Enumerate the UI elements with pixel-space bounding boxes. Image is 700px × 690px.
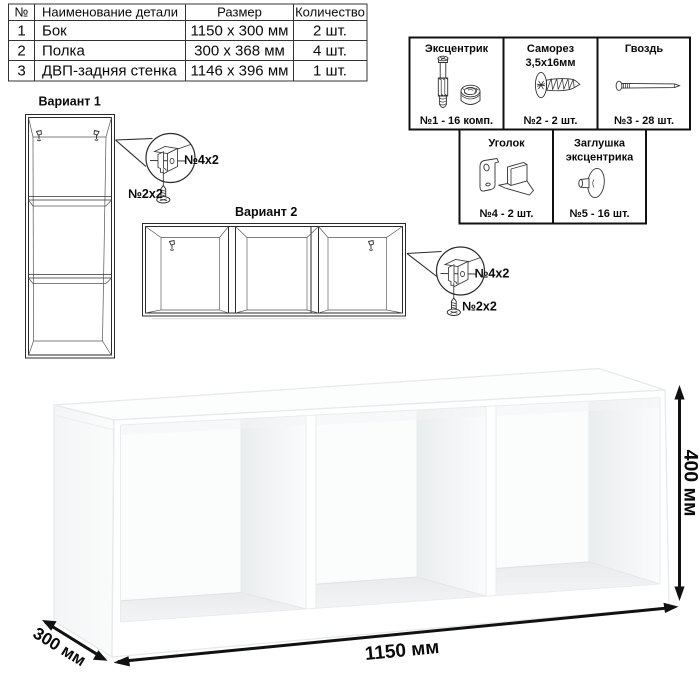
- svg-text:Заглушка: Заглушка: [574, 138, 626, 150]
- svg-text:№4х2: №4х2: [184, 153, 219, 167]
- svg-text:2 шт.: 2 шт.: [313, 23, 347, 40]
- svg-text:1 шт.: 1 шт.: [313, 63, 347, 80]
- svg-text:№: №: [15, 5, 29, 20]
- svg-text:Вариант 1: Вариант 1: [39, 95, 101, 109]
- svg-text:Вариант 2: Вариант 2: [235, 205, 297, 219]
- svg-text:Эксцентрик: Эксцентрик: [425, 43, 489, 55]
- svg-text:Полка: Полка: [42, 43, 85, 60]
- svg-text:Уголок: Уголок: [488, 138, 525, 150]
- svg-text:300 x 368 мм: 300 x 368 мм: [194, 43, 285, 60]
- svg-text:Наименование детали: Наименование детали: [42, 5, 178, 20]
- svg-text:ДВП-задняя стенка: ДВП-задняя стенка: [42, 63, 177, 80]
- svg-text:№4х2: №4х2: [475, 267, 510, 281]
- svg-text:эксцентрика: эксцентрика: [566, 152, 634, 164]
- svg-text:Саморез: Саморез: [527, 43, 575, 55]
- svg-text:Количество: Количество: [295, 5, 365, 20]
- svg-text:Бок: Бок: [42, 23, 67, 40]
- svg-text:3,5х16мм: 3,5х16мм: [526, 57, 576, 69]
- svg-text:Гвоздь: Гвоздь: [625, 43, 664, 55]
- svg-text:3: 3: [17, 63, 25, 80]
- svg-text:№5 - 16 шт.: №5 - 16 шт.: [569, 208, 629, 220]
- svg-text:№1 - 16 комп.: №1 - 16 комп.: [420, 115, 493, 127]
- svg-text:№3 - 28 шт.: №3 - 28 шт.: [614, 115, 674, 127]
- svg-text:4 шт.: 4 шт.: [313, 43, 347, 60]
- svg-text:2: 2: [17, 43, 25, 60]
- svg-text:№4 - 2 шт.: №4 - 2 шт.: [480, 208, 534, 220]
- svg-text:1150 x 300 мм: 1150 x 300 мм: [191, 23, 289, 40]
- svg-text:1146 x 396 мм: 1146 x 396 мм: [191, 63, 289, 80]
- svg-text:№2х2: №2х2: [128, 187, 163, 201]
- svg-text:№2х2: №2х2: [462, 300, 497, 314]
- svg-text:№2 - 2 шт.: №2 - 2 шт.: [524, 115, 578, 127]
- svg-text:400 мм: 400 мм: [680, 450, 700, 517]
- svg-text:1: 1: [17, 23, 25, 40]
- svg-text:Размер: Размер: [217, 5, 262, 20]
